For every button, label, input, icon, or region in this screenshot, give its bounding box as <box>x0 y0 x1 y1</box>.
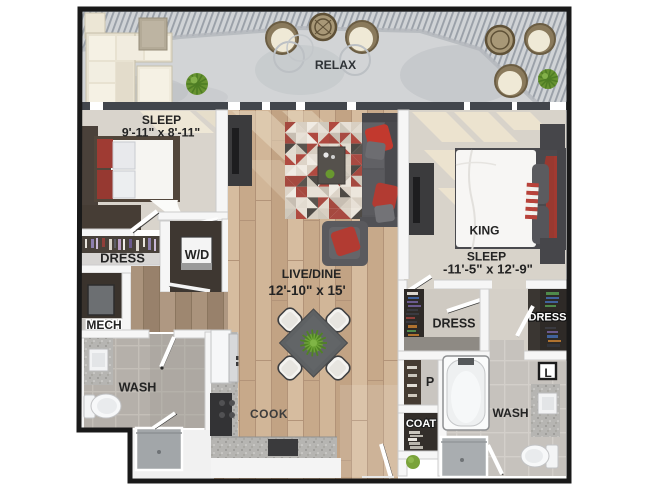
svg-text:WASH: WASH <box>119 381 157 395</box>
svg-text:DRESS: DRESS <box>529 312 567 324</box>
svg-text:WASH: WASH <box>493 406 529 420</box>
svg-text:DRESS: DRESS <box>432 317 475 331</box>
svg-text:COAT: COAT <box>406 418 437 430</box>
svg-text:LIVE/DINE: LIVE/DINE <box>282 267 342 281</box>
svg-text:DRESS: DRESS <box>100 251 145 266</box>
svg-text:COOK: COOK <box>250 407 288 421</box>
svg-text:12'-10" x 15': 12'-10" x 15' <box>268 283 345 298</box>
svg-text:-11'-5" x 12'-9": -11'-5" x 12'-9" <box>443 262 533 277</box>
svg-text:P: P <box>426 375 434 389</box>
svg-text:L: L <box>544 366 551 380</box>
svg-text:RELAX: RELAX <box>315 58 357 72</box>
svg-text:9'-11" x 8'-11": 9'-11" x 8'-11" <box>122 126 200 140</box>
svg-text:KING: KING <box>470 224 500 238</box>
svg-text:W/D: W/D <box>185 248 209 262</box>
